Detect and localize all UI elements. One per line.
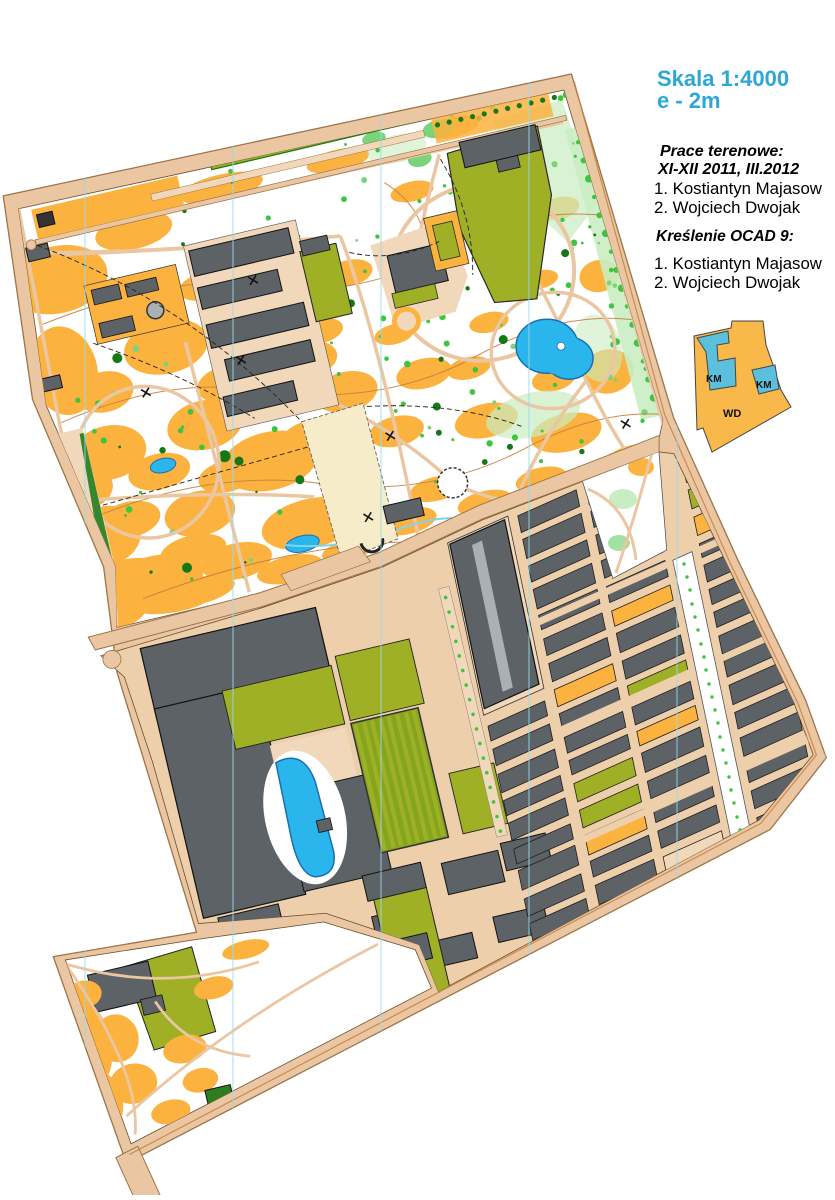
- svg-text:WD: WD: [723, 408, 741, 420]
- svg-text:KM: KM: [706, 374, 722, 385]
- svg-text:2. Wojciech Dwojak: 2. Wojciech Dwojak: [654, 273, 801, 292]
- svg-text:Prace terenowe:: Prace terenowe:: [660, 143, 784, 160]
- svg-text:1. Kostiantyn Majasow: 1. Kostiantyn Majasow: [654, 254, 823, 273]
- svg-text:2. Wojciech Dwojak: 2. Wojciech Dwojak: [654, 198, 801, 217]
- svg-text:1. Kostiantyn Majasow: 1. Kostiantyn Majasow: [654, 179, 823, 198]
- svg-text:e - 2m: e - 2m: [657, 88, 721, 113]
- svg-text:KM: KM: [756, 380, 772, 391]
- svg-text:XI-XII 2011, III.2012: XI-XII 2011, III.2012: [657, 161, 799, 178]
- svg-text:Kreślenie OCAD 9:: Kreślenie OCAD 9:: [656, 228, 794, 245]
